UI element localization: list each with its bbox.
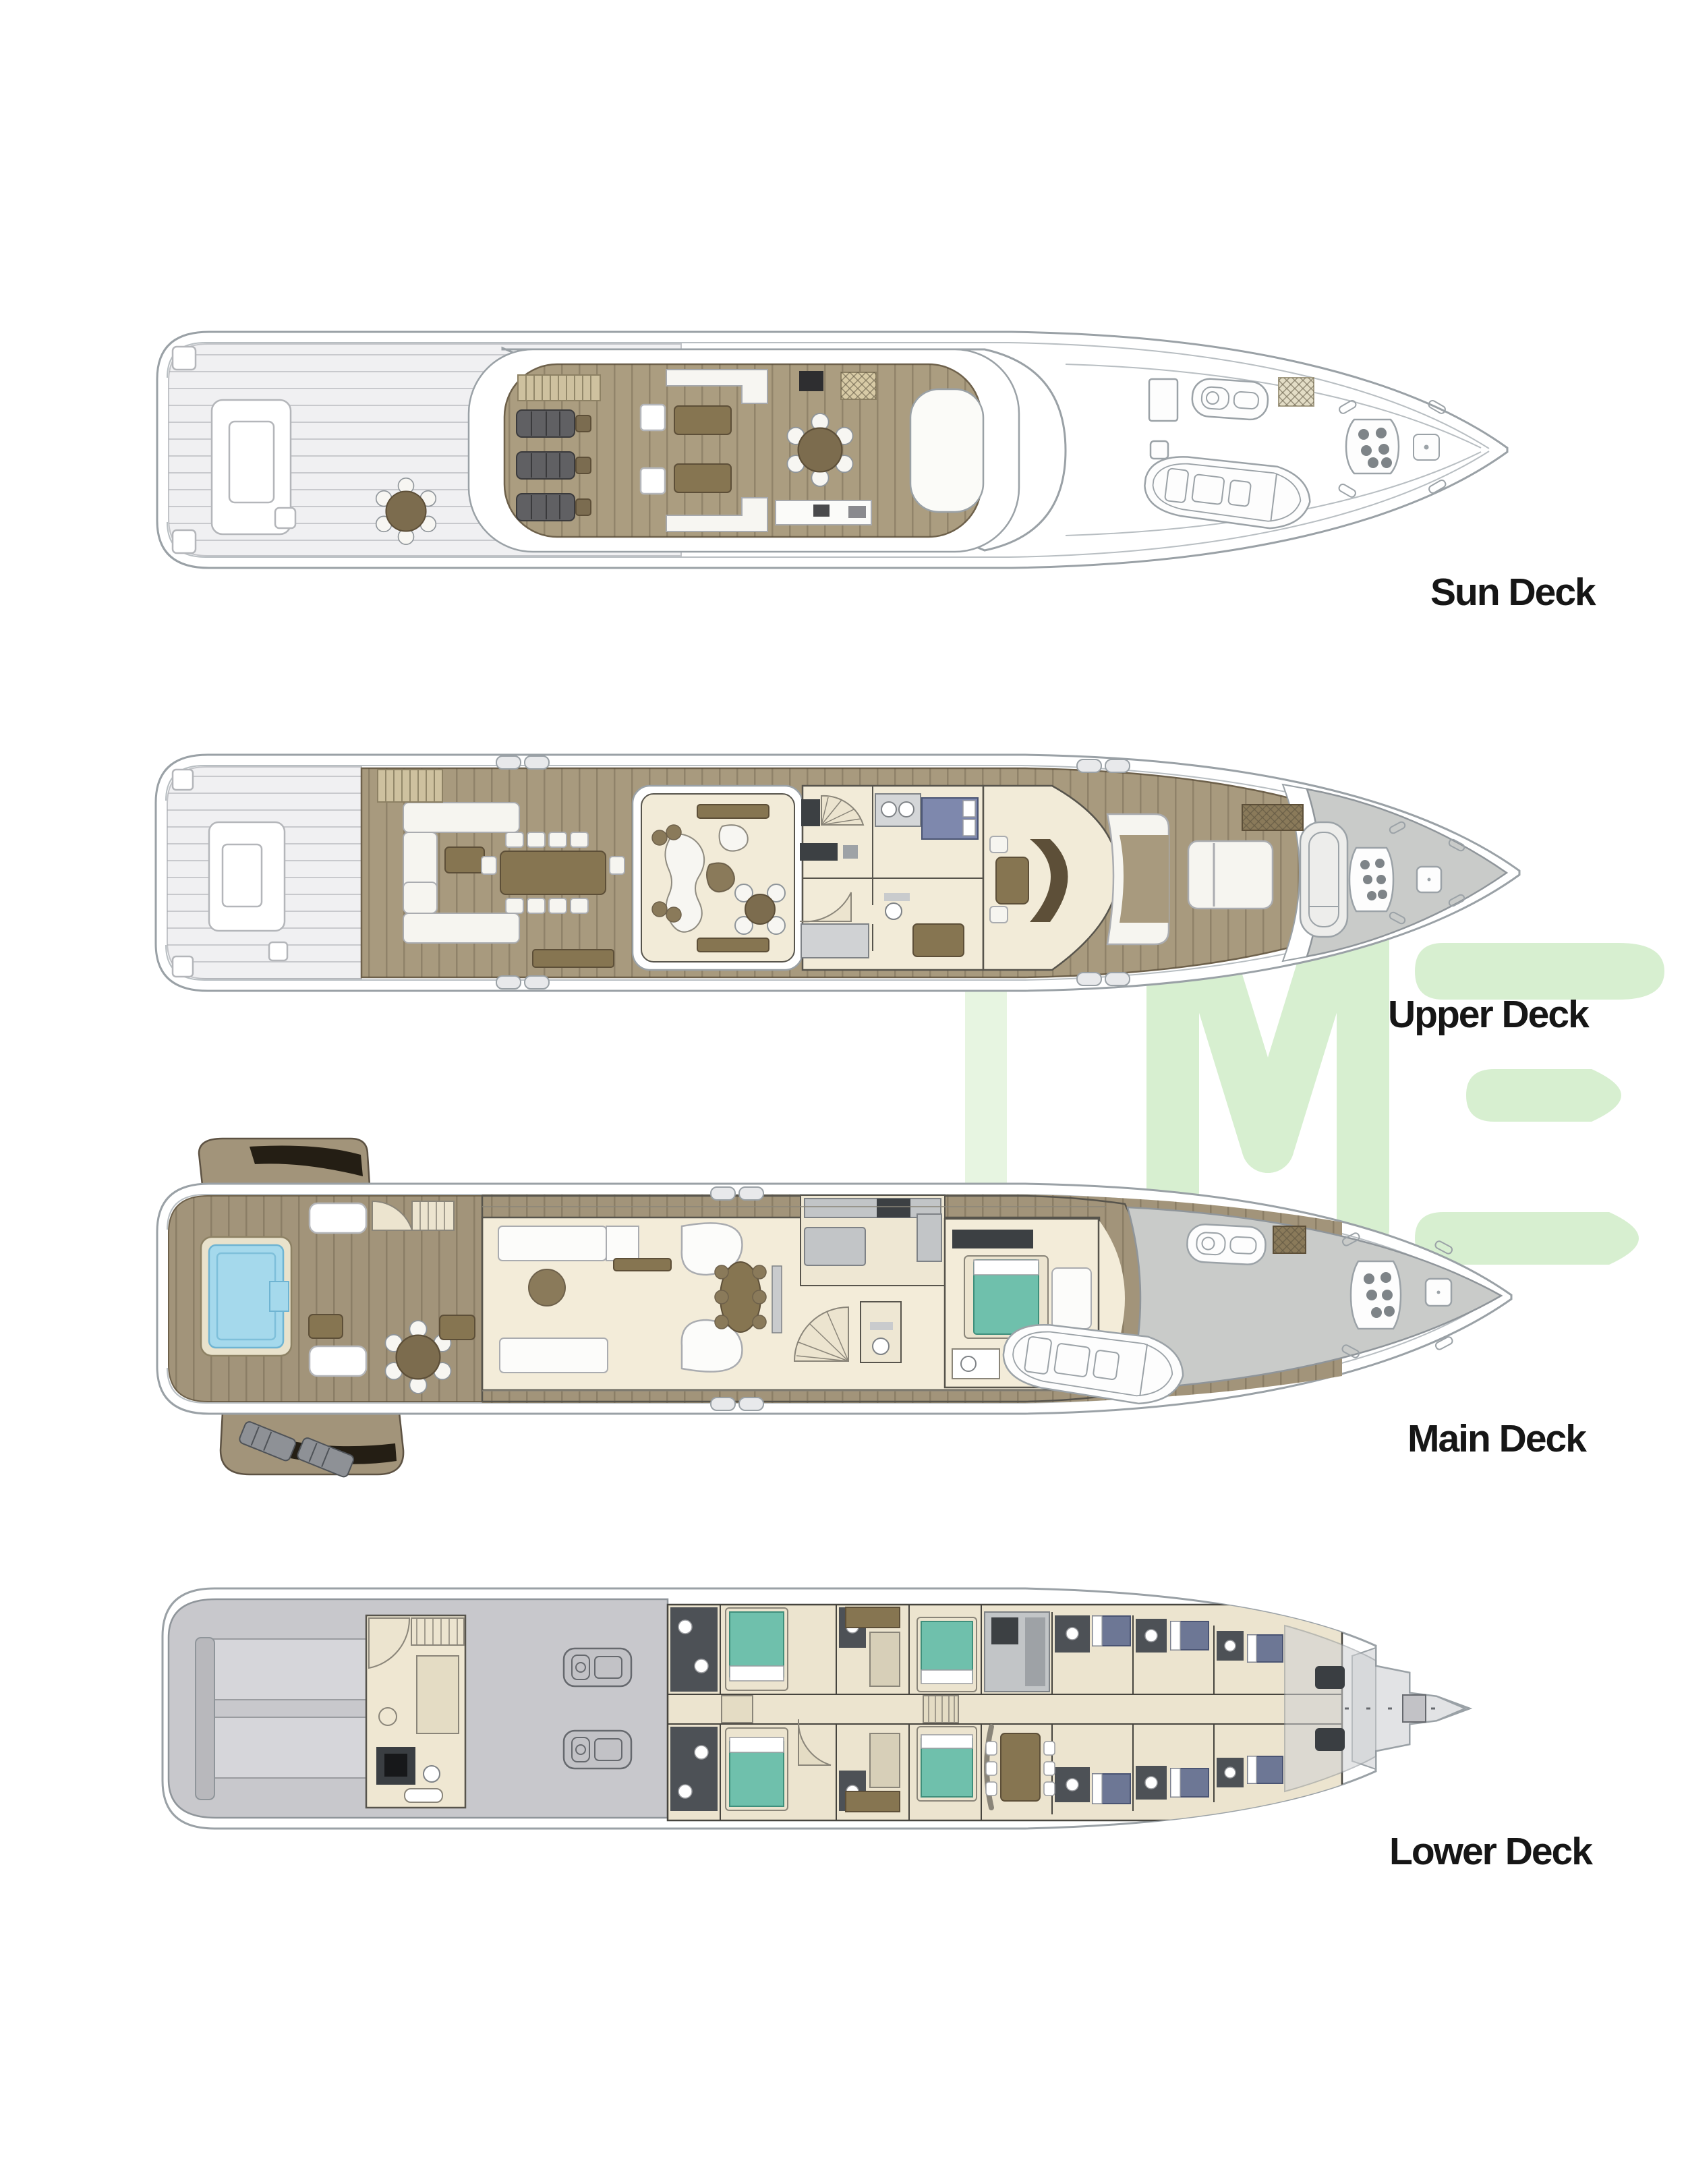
svg-text:Upper Deck: Upper Deck bbox=[1388, 993, 1590, 1036]
svg-text:Main Deck: Main Deck bbox=[1407, 1417, 1587, 1460]
svg-text:Lower Deck: Lower Deck bbox=[1389, 1830, 1593, 1873]
svg-text:Sun Deck: Sun Deck bbox=[1430, 571, 1596, 614]
